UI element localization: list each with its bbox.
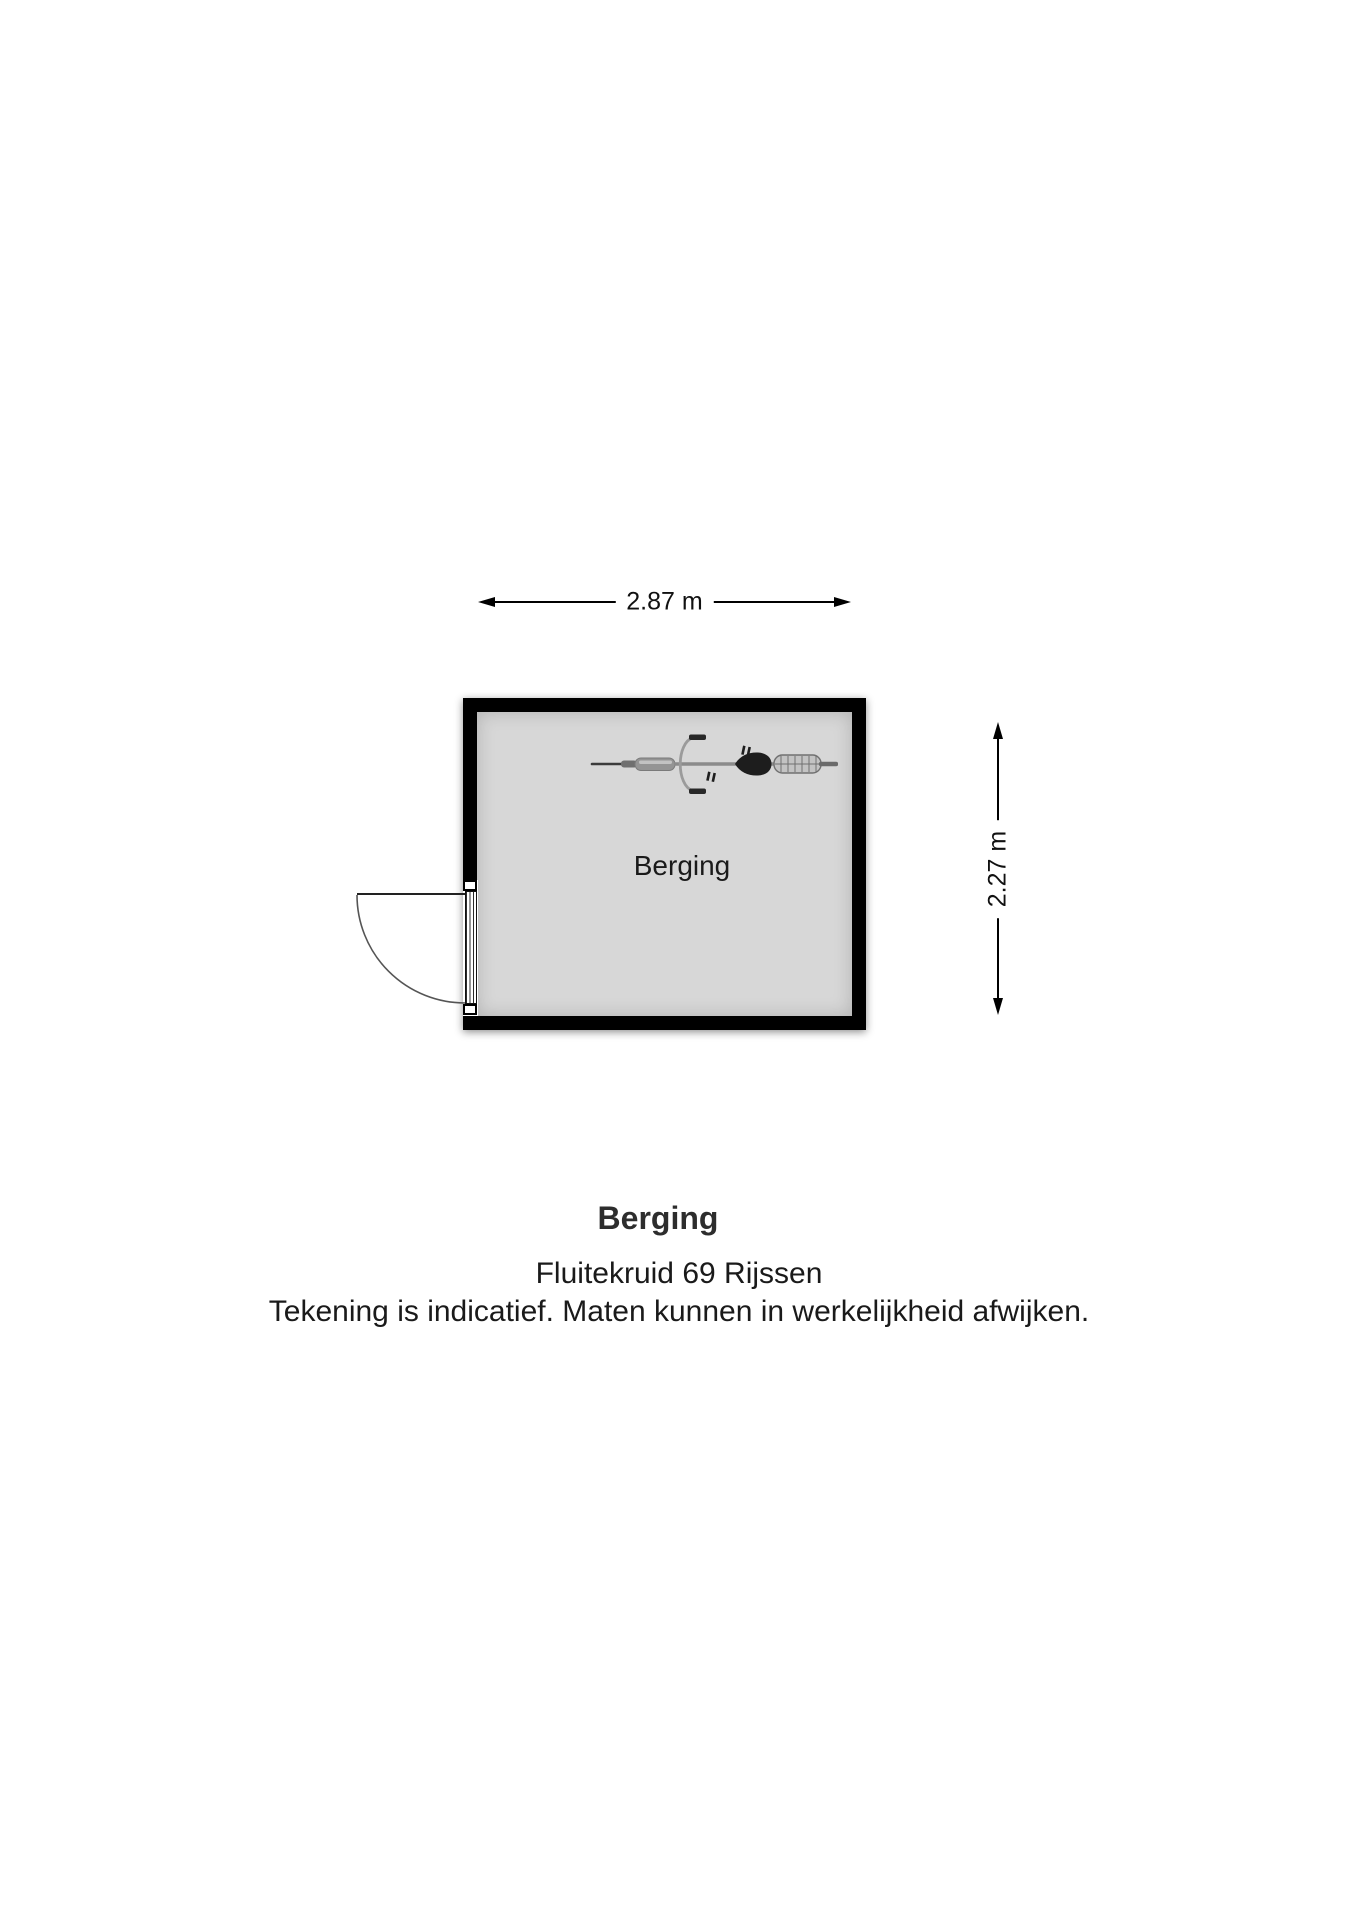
caption-address: Fluitekruid 69 Rijssen	[536, 1257, 823, 1291]
height-dimension: 2.27 m	[987, 722, 1009, 1015]
width-dimension-label: 2.87 m	[615, 586, 713, 619]
bicycle-icon	[590, 733, 838, 796]
arrow-down-icon	[993, 998, 1003, 1015]
floorplan-page: 2.87 m 2.27 m	[0, 0, 1358, 1920]
arrow-up-icon	[993, 722, 1003, 739]
door-swing-arc	[353, 892, 467, 1006]
arrow-left-icon	[478, 597, 495, 607]
room-label: Berging	[634, 850, 731, 882]
caption-disclaimer: Tekening is indicatief. Maten kunnen in …	[269, 1295, 1089, 1329]
height-dimension-label: 2.27 m	[982, 819, 1015, 917]
arrow-right-icon	[834, 597, 851, 607]
width-dimension: 2.87 m	[478, 591, 851, 613]
caption-title: Berging	[598, 1200, 719, 1237]
door-jamb-top	[463, 880, 477, 891]
